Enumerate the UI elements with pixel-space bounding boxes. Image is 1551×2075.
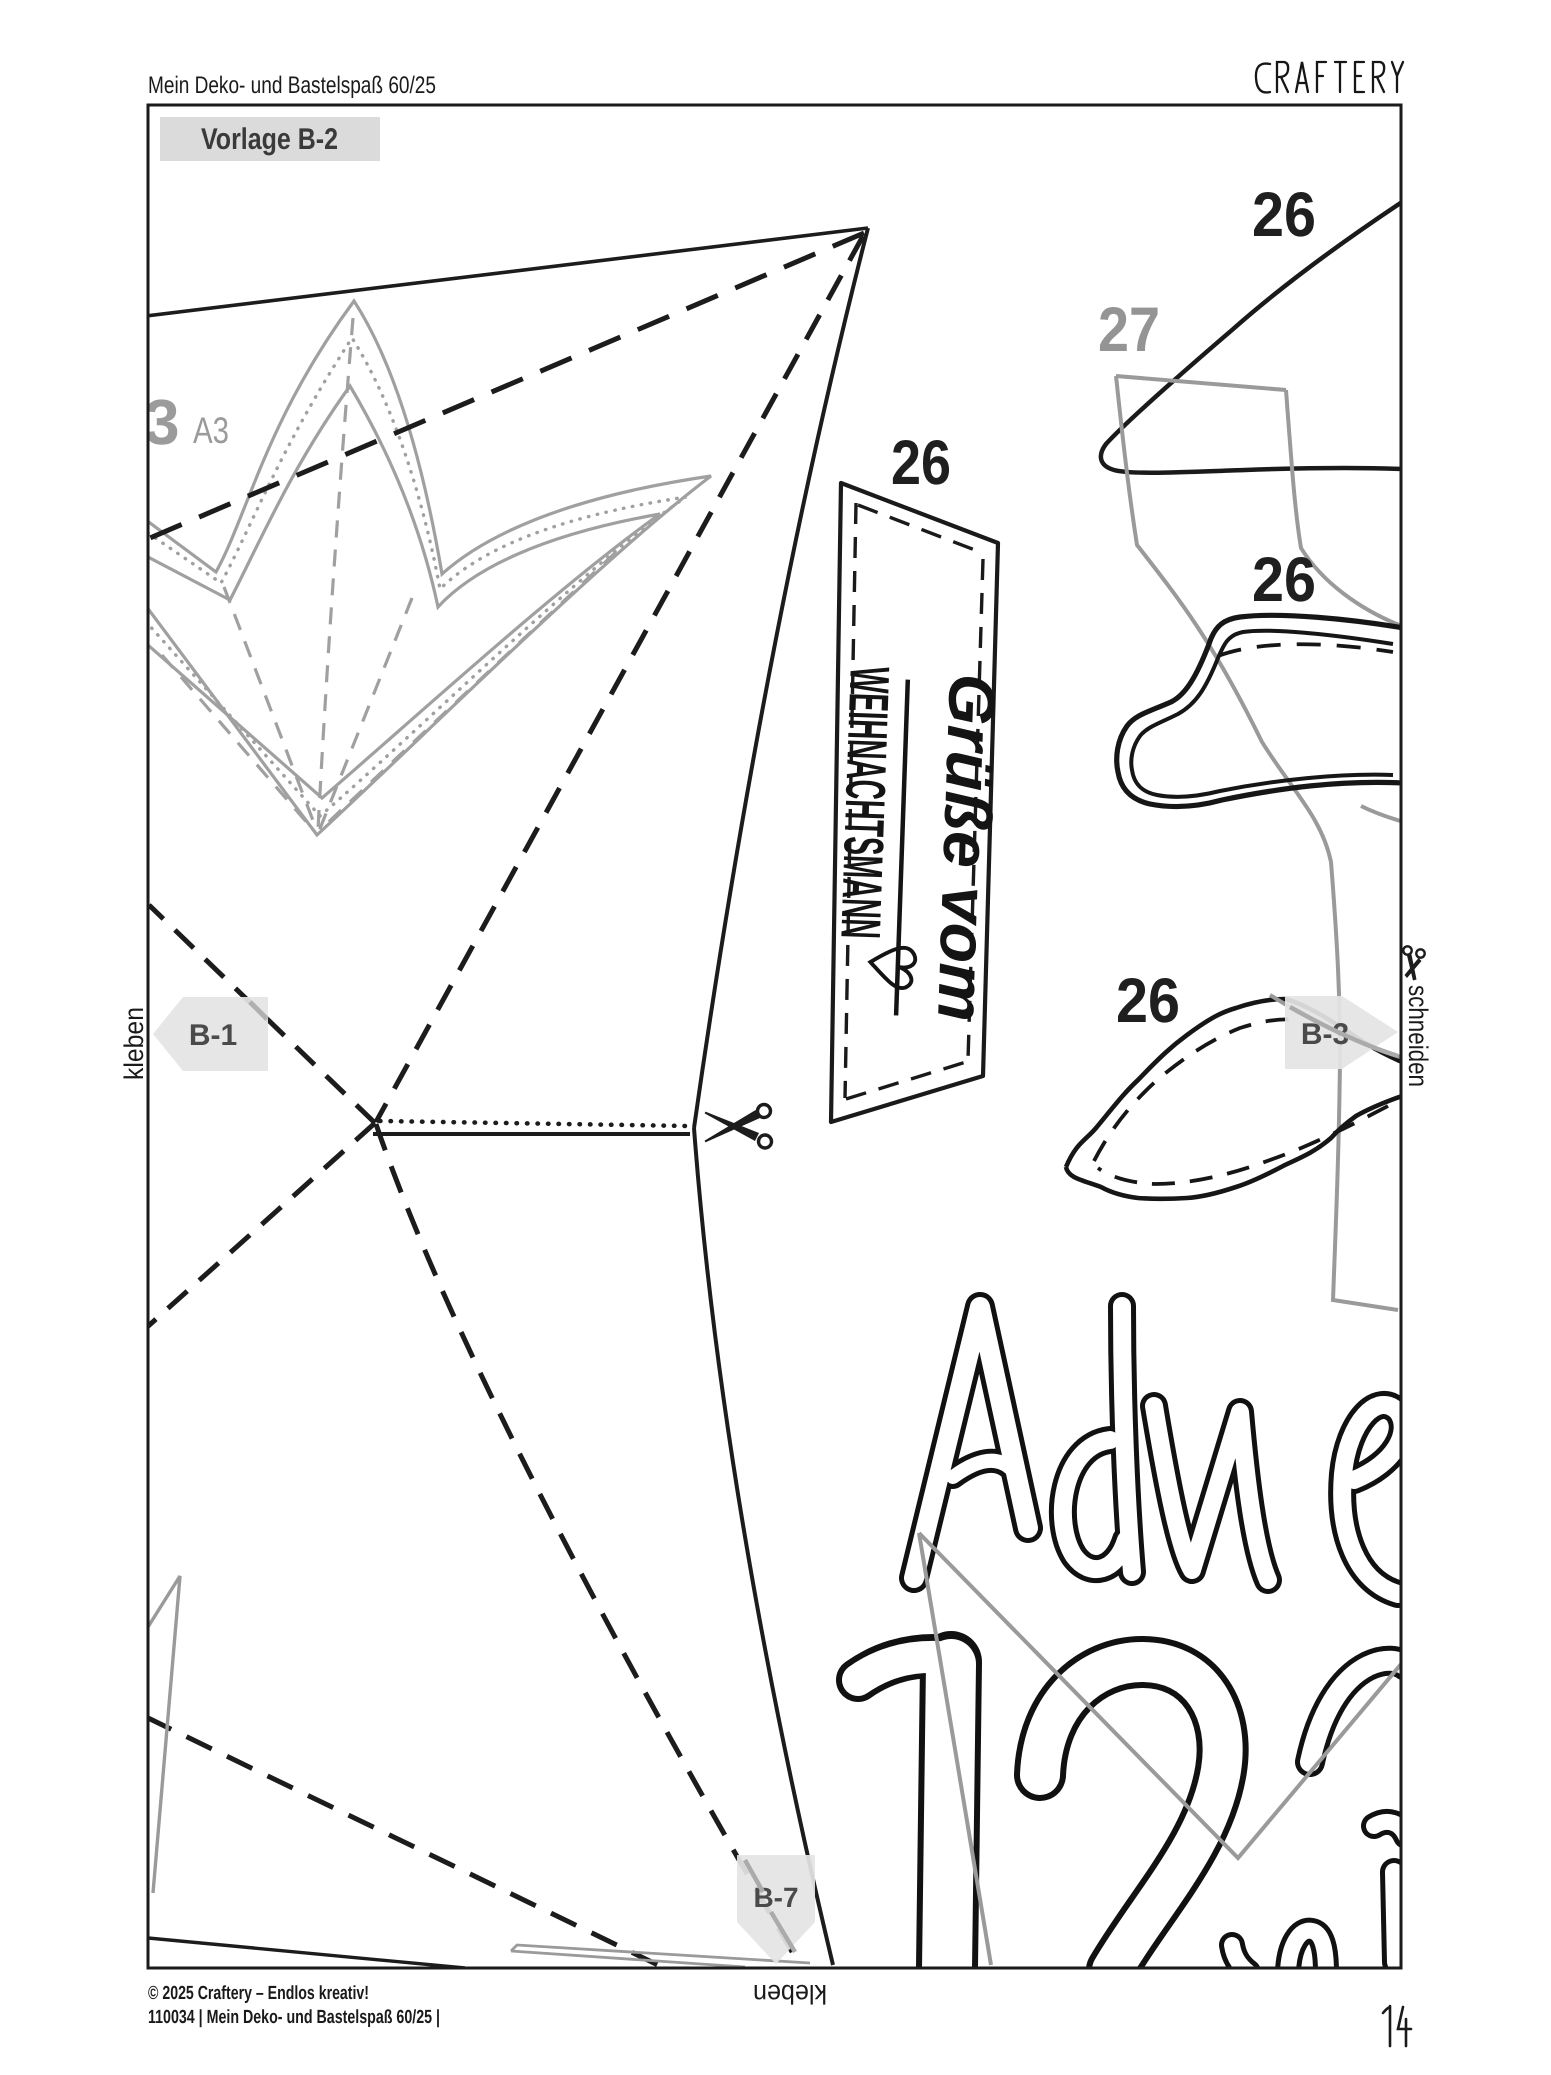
- svg-text:26: 26: [1252, 180, 1316, 250]
- svg-text:WEIHNACHTSMANN: WEIHNACHTSMANN: [829, 666, 901, 940]
- svg-text:Vorlage B-2: Vorlage B-2: [201, 123, 338, 156]
- svg-text:kleben: kleben: [119, 1007, 149, 1080]
- svg-text:110034 | Mein Deko- und Bastel: 110034 | Mein Deko- und Bastelspaß 60/25…: [148, 2007, 440, 2028]
- svg-text:Grüße vom: Grüße vom: [924, 673, 1010, 1023]
- svg-text:kleben: kleben: [753, 1979, 827, 2009]
- svg-text:26: 26: [1252, 545, 1316, 615]
- svg-text:26: 26: [1116, 966, 1180, 1036]
- svg-text:© 2025 Craftery – Endlos kreat: © 2025 Craftery – Endlos kreativ!: [148, 1983, 369, 2004]
- svg-text:Mein Deko- und Bastelspaß 60/2: Mein Deko- und Bastelspaß 60/25: [148, 72, 436, 99]
- svg-text:B-1: B-1: [189, 1019, 237, 1052]
- svg-text:schneiden: schneiden: [1403, 985, 1433, 1087]
- svg-text:27: 27: [1098, 295, 1160, 365]
- svg-text:A3: A3: [193, 410, 229, 451]
- svg-text:26: 26: [891, 428, 951, 498]
